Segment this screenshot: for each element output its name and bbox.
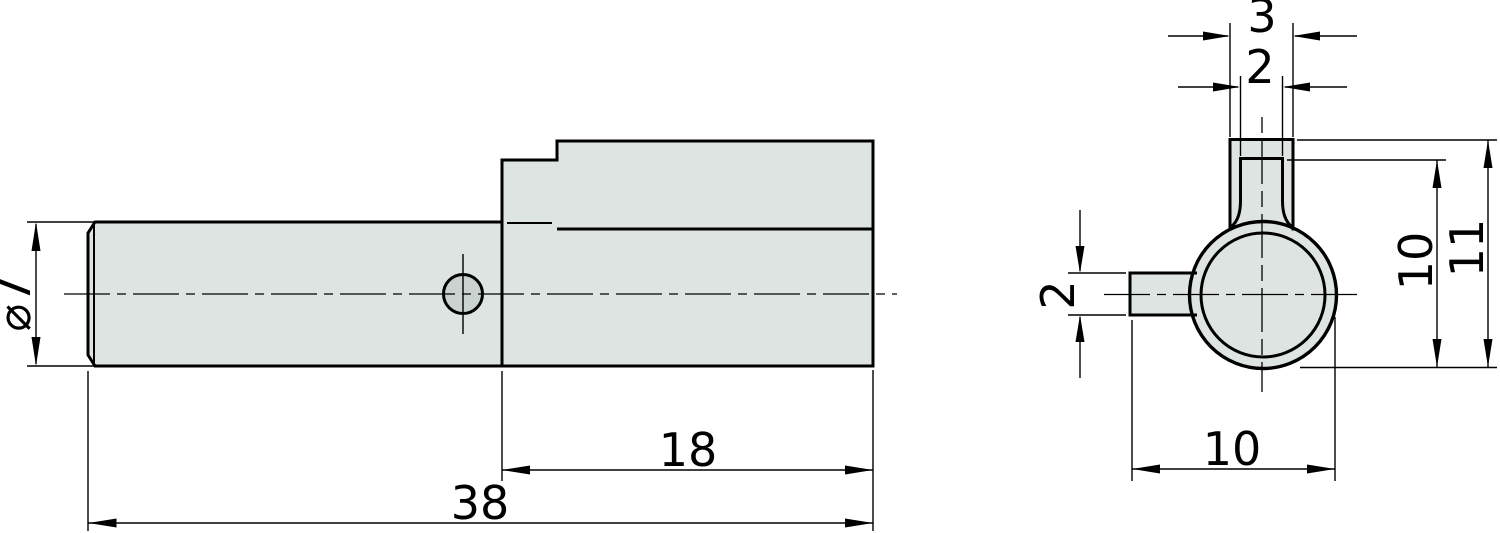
drawing-canvas: ⌀7 18 38 bbox=[0, 0, 1500, 533]
arrowhead-down bbox=[1433, 339, 1442, 367]
dimension-total-length-38: 38 bbox=[88, 371, 873, 531]
arrowhead-down bbox=[32, 337, 41, 366]
arrowhead-right bbox=[1203, 32, 1230, 41]
dimension-label-overall-width: 10 bbox=[1203, 422, 1262, 476]
technical-drawing: ⌀7 18 38 bbox=[0, 0, 1500, 533]
arrowhead-down bbox=[1484, 339, 1493, 367]
dimension-label-total-length: 38 bbox=[451, 476, 510, 530]
arrowhead-left bbox=[1132, 465, 1160, 474]
dimension-label-tab-outer-width: 3 bbox=[1247, 0, 1276, 43]
arrowhead-up bbox=[1433, 160, 1442, 188]
arrowhead-right bbox=[845, 519, 873, 528]
arrowhead-right bbox=[1307, 465, 1335, 474]
side-view: ⌀7 18 38 bbox=[0, 141, 897, 531]
dimension-label-overall-height: 11 bbox=[1440, 219, 1494, 278]
shaft-outline bbox=[88, 141, 873, 366]
arrowhead-left bbox=[502, 466, 530, 475]
arrowhead-down bbox=[1076, 246, 1085, 273]
arrowhead-left bbox=[1283, 83, 1310, 92]
dimension-label-tab-inner-width: 2 bbox=[1245, 40, 1274, 94]
arrowhead-up bbox=[1484, 140, 1493, 168]
arrowhead-right bbox=[1213, 83, 1240, 92]
dimension-label-fin-length: 18 bbox=[659, 423, 718, 477]
arrowhead-left bbox=[1293, 32, 1320, 41]
arrowhead-left bbox=[89, 519, 117, 528]
dimension-label-height-step: 10 bbox=[1389, 232, 1443, 291]
dimension-fin-length-18: 18 bbox=[502, 370, 873, 531]
arrowhead-up bbox=[1076, 315, 1085, 342]
arrowhead-right bbox=[845, 466, 873, 475]
arrowhead-up bbox=[32, 222, 41, 251]
end-view: 3 2 2 10 bbox=[1031, 0, 1497, 481]
dimension-label-diameter: ⌀7 bbox=[0, 275, 41, 332]
dimension-label-pin-height: 2 bbox=[1031, 280, 1085, 309]
